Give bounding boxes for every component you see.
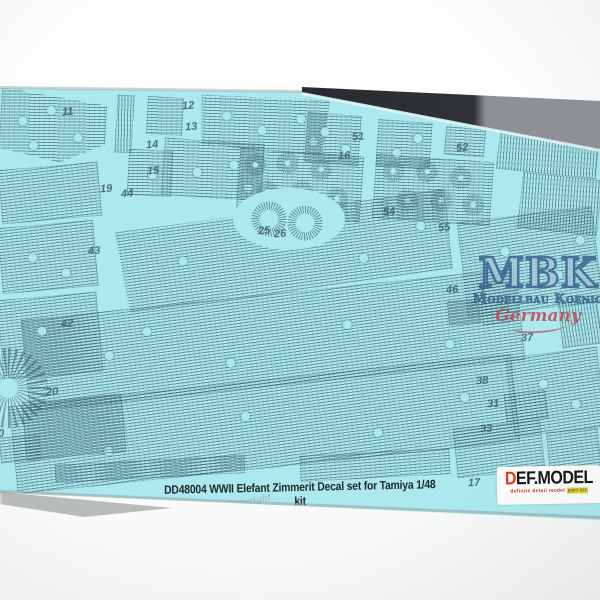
part-number-55: 55: [438, 222, 451, 235]
decal-piece-hole: [226, 358, 236, 368]
zimmerit-rosette: [416, 160, 439, 183]
decal-piece-hole: [413, 134, 423, 144]
part-number-26: 26: [274, 228, 287, 241]
decal-piece: [287, 205, 323, 241]
decal-piece: [0, 162, 102, 225]
part-number-30: 30: [0, 428, 5, 441]
decal-piece-hole: [18, 116, 27, 125]
decal-piece-hole: [47, 106, 56, 115]
part-number-31: 31: [487, 398, 500, 411]
part-number-7: 7: [479, 286, 486, 298]
part-number-12: 12: [182, 100, 195, 113]
decal-piece-hole: [359, 253, 369, 263]
defmodel-logo-text: DEF.MODEL: [497, 467, 600, 491]
decal-piece: [146, 96, 184, 136]
decal-piece: [114, 95, 134, 154]
decal-piece-hole: [229, 160, 239, 170]
part-number-54: 54: [383, 206, 396, 219]
decal-piece-hole: [178, 256, 188, 266]
zimmerit-rosette: [244, 153, 267, 176]
decal-piece-hole: [373, 428, 383, 438]
defmodel-logo: DEF.MODEL definite detail model part kit: [497, 465, 600, 505]
decal-piece-hole: [571, 399, 581, 409]
decal-piece: [557, 298, 600, 349]
decal-piece: [0, 87, 108, 164]
part-number-17: 17: [468, 477, 481, 490]
decal-piece-hole: [28, 253, 38, 263]
zimmerit-rosette: [461, 193, 484, 216]
decal-piece-hole: [73, 133, 82, 142]
part-number-42: 42: [61, 318, 74, 331]
part-number-11: 11: [62, 106, 74, 119]
decal-piece-hole: [538, 379, 548, 389]
decal-piece-hole: [575, 235, 585, 245]
decal-piece-hole: [445, 339, 455, 349]
part-number-43: 43: [88, 245, 101, 258]
part-number-51: 51: [352, 131, 365, 144]
part-number-13: 13: [185, 121, 198, 134]
decal-piece: [0, 434, 41, 463]
decal-piece-hole: [192, 168, 202, 178]
part-number-15: 15: [147, 165, 160, 178]
part-number-16: 16: [338, 150, 351, 163]
decal-piece-hole: [553, 270, 563, 280]
part-number-14: 14: [146, 139, 159, 152]
part-number-25: 25: [258, 225, 271, 238]
zimmerit-rosette: [381, 159, 404, 182]
product-photo: 1112131415194451165254552526434220304673…: [0, 0, 600, 600]
part-number-20: 20: [46, 386, 59, 399]
decal-piece-hole: [320, 127, 330, 137]
decal-piece-hole: [104, 351, 114, 361]
decal-piece: [0, 220, 99, 294]
zimmerit-rosette: [276, 151, 299, 174]
part-number-19: 19: [100, 183, 113, 196]
decal-piece-hole: [29, 141, 38, 150]
zimmerit-rosette: [449, 166, 472, 189]
part-number-46: 46: [446, 284, 459, 297]
decal-piece-hole: [257, 126, 267, 136]
decal-piece-hole: [296, 114, 306, 124]
decal-piece-hole: [222, 111, 232, 121]
decal-piece-hole: [460, 392, 470, 402]
part-number-37: 37: [521, 332, 534, 345]
decal-piece-hole: [37, 326, 47, 336]
part-number-33: 33: [480, 423, 493, 436]
decal-piece-hole: [241, 411, 251, 421]
decal-piece-hole: [342, 320, 352, 330]
decal-piece-hole: [61, 268, 71, 278]
part-number-38: 38: [476, 375, 489, 388]
part-number-44: 44: [121, 188, 134, 201]
decal-piece-hole: [500, 246, 510, 256]
decal-piece-hole: [416, 221, 426, 231]
part-number-52: 52: [456, 142, 469, 155]
decal-piece-hole: [142, 327, 152, 337]
